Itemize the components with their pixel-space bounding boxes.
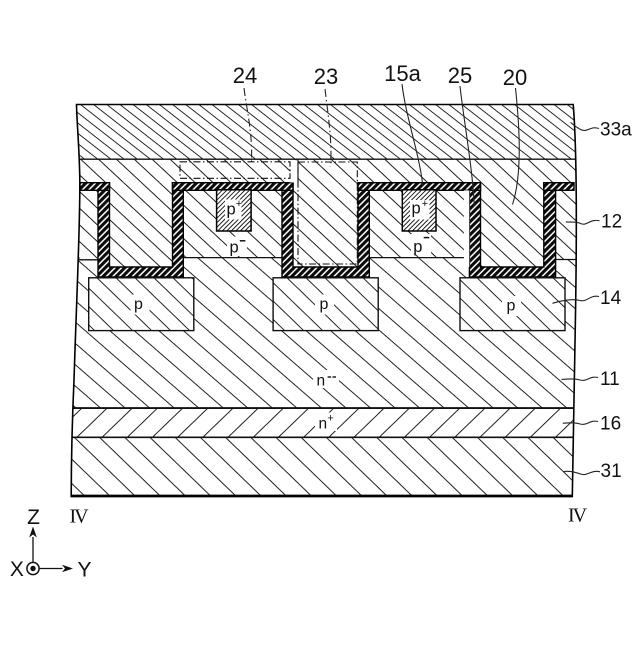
svg-text:23: 23 bbox=[314, 64, 338, 89]
svg-text:IV: IV bbox=[69, 506, 89, 528]
svg-text:p: p bbox=[412, 200, 421, 218]
svg-text:11: 11 bbox=[600, 369, 620, 390]
svg-text:+: + bbox=[236, 198, 242, 210]
svg-text:+: + bbox=[422, 198, 428, 210]
svg-text:Z: Z bbox=[27, 506, 40, 529]
svg-text:20: 20 bbox=[503, 65, 527, 90]
svg-text:24: 24 bbox=[233, 63, 257, 88]
svg-text:15a: 15a bbox=[384, 61, 421, 86]
svg-text:p: p bbox=[413, 238, 422, 256]
svg-text:12: 12 bbox=[601, 212, 622, 233]
svg-text:14: 14 bbox=[600, 288, 622, 309]
svg-text:31: 31 bbox=[601, 461, 622, 482]
svg-text:p: p bbox=[320, 296, 329, 313]
svg-text:X: X bbox=[10, 558, 24, 581]
svg-text:p: p bbox=[230, 239, 239, 257]
svg-text:+: + bbox=[327, 413, 333, 425]
svg-text:p: p bbox=[507, 298, 516, 315]
svg-text:33a: 33a bbox=[600, 120, 632, 141]
svg-text:n: n bbox=[319, 416, 328, 433]
svg-text:p: p bbox=[134, 296, 143, 313]
svg-text:p: p bbox=[227, 201, 236, 219]
svg-text:n: n bbox=[317, 373, 326, 390]
svg-text:25: 25 bbox=[448, 63, 472, 88]
svg-text:IV: IV bbox=[568, 505, 588, 527]
svg-text:16: 16 bbox=[600, 414, 621, 435]
svg-text:Y: Y bbox=[77, 559, 91, 582]
